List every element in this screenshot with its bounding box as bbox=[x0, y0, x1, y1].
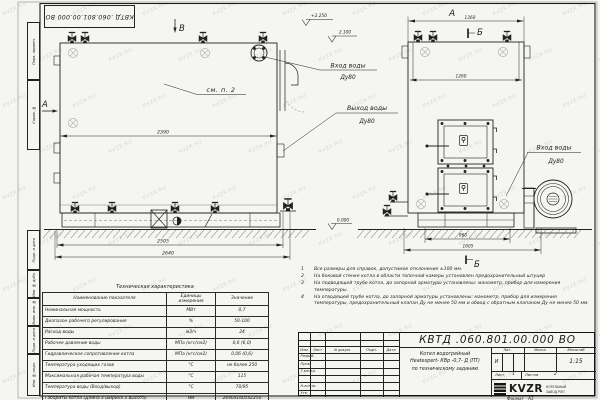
table-cell: МВт bbox=[167, 306, 216, 317]
elevation-marks bbox=[302, 20, 357, 230]
doc-number: КВТД .060.801.00.000 ВО bbox=[399, 333, 596, 347]
margin-field-label: Взам. инв. № bbox=[32, 300, 36, 325]
table-row: Диапазон рабочего регулирования%50-100 bbox=[43, 317, 269, 328]
margin-field-perv-primen: Перв. примен. bbox=[27, 22, 40, 80]
scale-value: 1:15 bbox=[556, 358, 596, 365]
top-stamp-doc-number: КВТД .060.801.00.000 ВО bbox=[45, 13, 133, 20]
note-item: 4На отводящей трубе котла, до запорной а… bbox=[299, 295, 592, 309]
table-row: Температура уходящих газов°Сне более 250 bbox=[43, 361, 269, 372]
leader-lines bbox=[164, 57, 581, 196]
table-row: Максимальная рабочая температура воды°С1… bbox=[43, 372, 269, 383]
table-cell: м3/ч bbox=[167, 328, 216, 339]
margin-field-label: Подп. и дата bbox=[32, 238, 36, 262]
table-row: Гидравлическое сопротивление котлаМПа (к… bbox=[43, 350, 269, 361]
note-text: Все размеры для справок, допустимое откл… bbox=[314, 267, 592, 274]
table-header: Наименование показателя bbox=[43, 293, 167, 306]
inlet1-dn-label: Ду80 bbox=[339, 75, 356, 81]
kvzr-logo-text: KVZR bbox=[509, 383, 543, 395]
table-cell: не более 250 bbox=[216, 361, 269, 372]
col-podp: Подп. bbox=[360, 348, 383, 352]
scale-header: Масштаб bbox=[556, 348, 596, 352]
margin-field-label: Перв. примен. bbox=[32, 38, 36, 65]
table-cell: °С bbox=[167, 372, 216, 383]
margin-field-podp-data-2: Подп. и дата bbox=[27, 326, 40, 354]
table-cell: Габариты котла (Длина х ширина х высота) bbox=[43, 394, 167, 400]
tech-characteristics: Техническая характеристика Наименование … bbox=[42, 283, 268, 400]
table-cell: °С bbox=[167, 361, 216, 372]
margin-field-podp-data-1: Подп. и дата bbox=[27, 230, 40, 270]
row-razrab: Разраб. bbox=[301, 354, 315, 358]
note-item: 2На боковой стенке котла в области топоч… bbox=[299, 274, 592, 281]
table-row: Температура воды (Вход/выход)°С70/95 bbox=[43, 383, 269, 394]
table-cell: % bbox=[167, 317, 216, 328]
table-cell: МПа (кгс/см2) bbox=[167, 350, 216, 361]
col-ndokum: N докум. bbox=[325, 348, 360, 352]
format-value: А3 bbox=[528, 396, 534, 400]
drawing-sheet: KVZR.RUKVZR.RUKVZR.RUKVZR.RUKVZR.RUKVZR.… bbox=[0, 0, 600, 400]
table-header-row: Наименование показателя Единицы измерени… bbox=[43, 293, 269, 306]
view-a-arrow-label: А bbox=[41, 100, 48, 110]
lit-header: Лит. bbox=[491, 348, 524, 352]
margin-field-label: Инв. № подл. bbox=[32, 362, 36, 387]
outlet-label: Выход воды bbox=[347, 105, 387, 112]
table-header: Единицы измерения bbox=[167, 293, 216, 306]
row-nkontr: Н.контр. bbox=[301, 384, 317, 388]
upper-door bbox=[426, 120, 497, 164]
sheets-label: Листов bbox=[525, 373, 538, 377]
table-cell: 2640х1605х2250 bbox=[216, 394, 269, 400]
dim-side-base: 2505 bbox=[157, 239, 169, 245]
elevation-mid: 2.100 bbox=[339, 30, 352, 36]
table-row: Номинальная мощностьМВт0,7 bbox=[43, 306, 269, 317]
fan-blower bbox=[522, 180, 576, 233]
table-cell: 50-100 bbox=[216, 317, 269, 328]
lit-value: И bbox=[491, 359, 502, 365]
product-name: Котел водогрейный Heatexpert- КВр -0,7- … bbox=[399, 347, 491, 397]
note-number: 3 bbox=[299, 281, 314, 295]
note-number: 1 bbox=[299, 267, 314, 274]
margin-field-vzam-inv: Взам. инв. № bbox=[27, 298, 40, 326]
view-a-title: А bbox=[448, 9, 455, 19]
elevation-zero: 0.000 bbox=[337, 218, 350, 224]
inlet2-label: Вход воды bbox=[536, 145, 571, 152]
col-izm: Изм. bbox=[299, 348, 310, 352]
margin-field-label: Справ. № bbox=[32, 106, 36, 124]
table-cell: 115 bbox=[216, 372, 269, 383]
margin-field-label: Инв. № дубл. bbox=[32, 272, 36, 297]
table-cell: 0,7 bbox=[216, 306, 269, 317]
note-text: На боковой стенке котла в области топочн… bbox=[314, 274, 592, 281]
boiler-side-view bbox=[54, 33, 306, 229]
dimensions bbox=[55, 17, 541, 261]
sheet-label: Лист bbox=[495, 373, 504, 377]
kvzr-logo-line2: ЗАВОД РЭП bbox=[546, 390, 564, 394]
table-cell: 70/95 bbox=[216, 383, 269, 394]
table-cell: Рабочее давление воды bbox=[43, 339, 167, 350]
title-block: Изм. Лист N докум. Подп. Дата Разраб. Пр… bbox=[298, 332, 595, 396]
dim-side-overall: 2640 bbox=[162, 251, 174, 257]
margin-field-sprav-no: Справ. № bbox=[27, 80, 40, 150]
note-reference-label: см. п. 2 bbox=[206, 86, 235, 94]
table-cell: 0,06 (0,6) bbox=[216, 350, 269, 361]
table-row: Рабочее давление водыМПа (кгс/см2)0,6 (6… bbox=[43, 339, 269, 350]
table-row: Габариты котла (Длина х ширина х высота)… bbox=[43, 394, 269, 400]
table-cell: мм bbox=[167, 394, 216, 400]
note-text: На отводящей трубе котла, до запорной ар… bbox=[314, 295, 592, 309]
col-list: Лист bbox=[310, 348, 325, 352]
table-cell: Номинальная мощность bbox=[43, 306, 167, 317]
inlet1-label: Вход воды bbox=[330, 63, 365, 70]
table-header: Значение bbox=[216, 293, 269, 306]
table-cell: Температура воды (Вход/выход) bbox=[43, 383, 167, 394]
table-cell: Температура уходящих газов bbox=[43, 361, 167, 372]
table-cell: 0,6 (6,0) bbox=[216, 339, 269, 350]
dim-front-top: 1360 bbox=[465, 15, 476, 21]
kvzr-logo-icon bbox=[494, 383, 506, 395]
table-cell: МПа (кгс/см2) bbox=[167, 339, 216, 350]
note-item: 1Все размеры для справок, допустимое отк… bbox=[299, 267, 592, 274]
table-cell: °С bbox=[167, 383, 216, 394]
tech-table: Наименование показателя Единицы измерени… bbox=[42, 292, 269, 400]
dim-front-base: 960 bbox=[459, 233, 467, 239]
view-b-label: В bbox=[179, 24, 185, 34]
note-text: На подводящей трубе котла, до запорной а… bbox=[314, 281, 592, 295]
flue-duct bbox=[280, 50, 306, 112]
col-data: Дата bbox=[383, 348, 399, 352]
margin-field-inv-podl: Инв. № подл. bbox=[27, 354, 40, 396]
margin-field-inv-dubl: Инв. № дубл. bbox=[27, 270, 40, 298]
table-cell: Гидравлическое сопротивление котла bbox=[43, 350, 167, 361]
mass-header: Масса bbox=[524, 348, 556, 352]
note-number: 4 bbox=[299, 295, 314, 309]
row-tkontr: Т.контр. bbox=[301, 369, 317, 373]
kvzr-logo-line1: КОТЕЛЬНЫЙ bbox=[546, 385, 566, 389]
section-b-top-label: Б bbox=[477, 28, 483, 38]
dim-front-overall: 1605 bbox=[463, 244, 474, 250]
lower-door bbox=[426, 168, 497, 212]
format-word: Формат bbox=[507, 396, 524, 400]
top-stamp: КВТД .060.801.00.000 ВО bbox=[44, 5, 135, 28]
table-cell: Максимальная рабочая температура воды bbox=[43, 372, 167, 383]
row-prov: Пров. bbox=[301, 362, 311, 366]
elevation-top: +2.250 bbox=[311, 13, 327, 19]
table-cell: Расход воды bbox=[43, 328, 167, 339]
margin-field-label: Подп. и дата bbox=[32, 328, 36, 352]
table-row: Расход водым3/ч24 bbox=[43, 328, 269, 339]
row-utv: Утв. bbox=[301, 391, 309, 395]
sheets-value: 2 bbox=[554, 372, 557, 377]
outlet-dn-label: Ду80 bbox=[358, 119, 375, 125]
product-name-line1: Котел водогрейный bbox=[399, 351, 491, 358]
product-name-line3: по техническому заданию bbox=[399, 366, 491, 373]
inlet2-dn-label: Ду80 bbox=[547, 159, 564, 165]
ground-line bbox=[43, 230, 592, 239]
dim-side-length: 2390 bbox=[157, 130, 169, 136]
sheet-value: 1 bbox=[512, 372, 515, 377]
notes-section: 1Все размеры для справок, допустимое отк… bbox=[299, 267, 592, 308]
top-flange-icon bbox=[251, 45, 267, 61]
format-label: Формат А3 bbox=[507, 396, 534, 400]
table-title: Техническая характеристика bbox=[42, 283, 268, 292]
note-item: 3На подводящей трубе котла, до запорной … bbox=[299, 281, 592, 295]
front-base bbox=[418, 213, 514, 227]
table-cell: Диапазон рабочего регулирования bbox=[43, 317, 167, 328]
base-skid bbox=[62, 210, 296, 228]
product-name-line2: Heatexpert- КВр -0,7- Д (ПТ) bbox=[399, 358, 491, 365]
boiler-front-view bbox=[383, 32, 576, 234]
note-number: 2 bbox=[299, 274, 314, 281]
table-cell: 24 bbox=[216, 328, 269, 339]
dim-front-inner: 1260 bbox=[456, 74, 467, 80]
dimension-texts: 2390 2505 2640 1360 1260 960 1605 bbox=[157, 15, 476, 257]
